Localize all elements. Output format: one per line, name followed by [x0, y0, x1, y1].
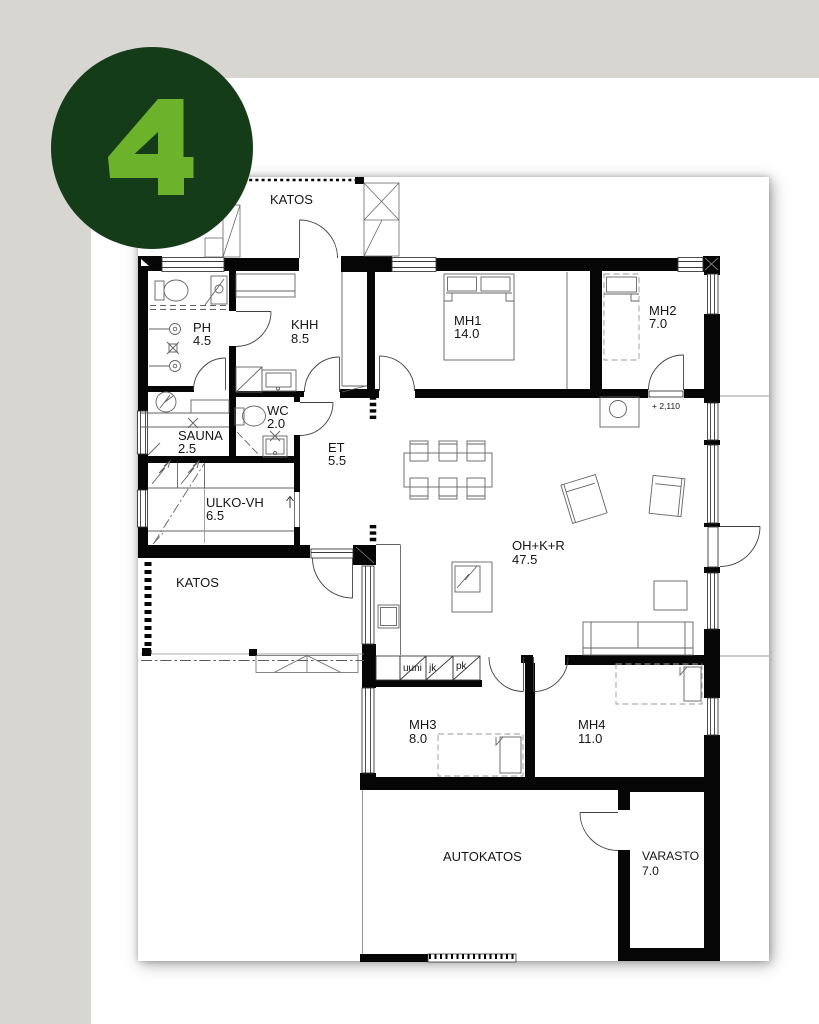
svg-text:KATOS: KATOS — [270, 192, 313, 207]
svg-text:8.0: 8.0 — [409, 731, 427, 746]
svg-text:47.5: 47.5 — [512, 552, 537, 567]
svg-text:8.5: 8.5 — [291, 331, 309, 346]
svg-text:MH3: MH3 — [409, 717, 436, 732]
svg-text:6.5: 6.5 — [206, 508, 224, 523]
svg-text:KATOS: KATOS — [176, 575, 219, 590]
svg-text:11.0: 11.0 — [578, 731, 602, 746]
svg-text:KHH: KHH — [291, 317, 318, 332]
svg-text:+ 2,110: + 2,110 — [652, 401, 680, 411]
svg-text:5.5: 5.5 — [328, 453, 346, 468]
svg-text:2.0: 2.0 — [267, 416, 285, 431]
svg-text:AUTOKATOS: AUTOKATOS — [443, 849, 522, 864]
svg-text:7.0: 7.0 — [649, 316, 667, 331]
svg-text:pk: pk — [456, 661, 468, 672]
svg-text:7.0: 7.0 — [642, 864, 659, 878]
svg-text:2.5: 2.5 — [178, 441, 196, 456]
svg-text:VARASTO: VARASTO — [642, 849, 699, 863]
svg-text:MH4: MH4 — [578, 717, 605, 732]
svg-text:jk: jk — [428, 663, 437, 674]
svg-text:4.5: 4.5 — [193, 333, 211, 348]
svg-text:14.0: 14.0 — [454, 326, 479, 341]
svg-text:uuni: uuni — [403, 663, 422, 674]
svg-text:OH+K+R: OH+K+R — [512, 538, 565, 553]
